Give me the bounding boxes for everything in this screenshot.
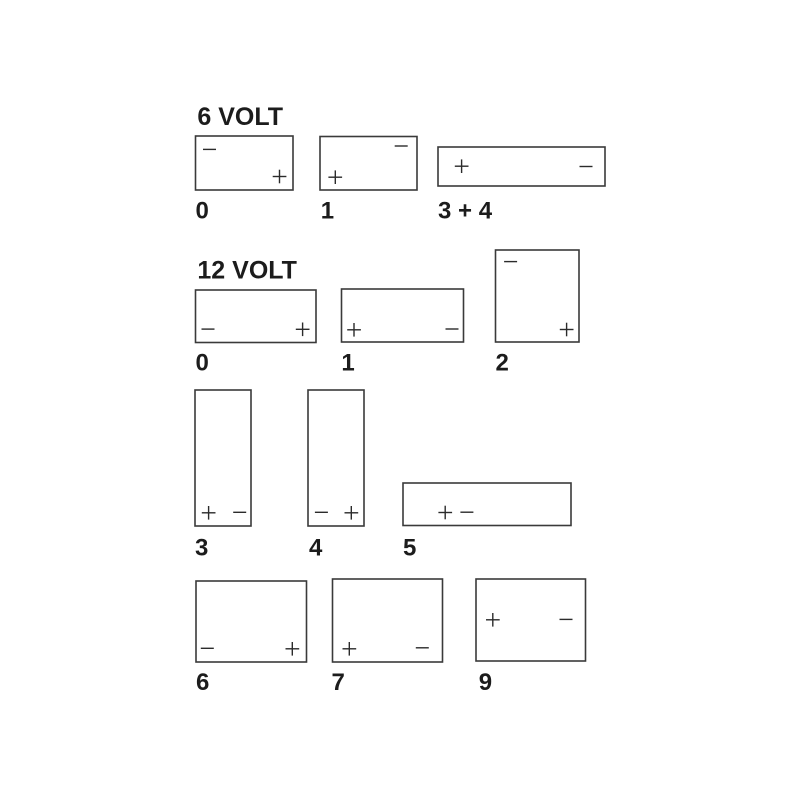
svg-text:1: 1 xyxy=(321,198,334,225)
svg-text:0: 0 xyxy=(196,198,209,225)
svg-text:12 VOLT: 12 VOLT xyxy=(197,257,297,285)
svg-text:6 VOLT: 6 VOLT xyxy=(197,103,283,131)
svg-text:4: 4 xyxy=(309,535,323,562)
svg-text:1: 1 xyxy=(341,350,354,377)
svg-text:9: 9 xyxy=(479,669,492,696)
svg-text:2: 2 xyxy=(496,350,509,377)
svg-text:6: 6 xyxy=(196,669,209,696)
svg-text:0: 0 xyxy=(196,350,209,377)
svg-text:5: 5 xyxy=(403,535,416,562)
svg-text:3 + 4: 3 + 4 xyxy=(438,198,493,225)
svg-text:7: 7 xyxy=(332,669,345,696)
svg-text:3: 3 xyxy=(195,535,208,562)
